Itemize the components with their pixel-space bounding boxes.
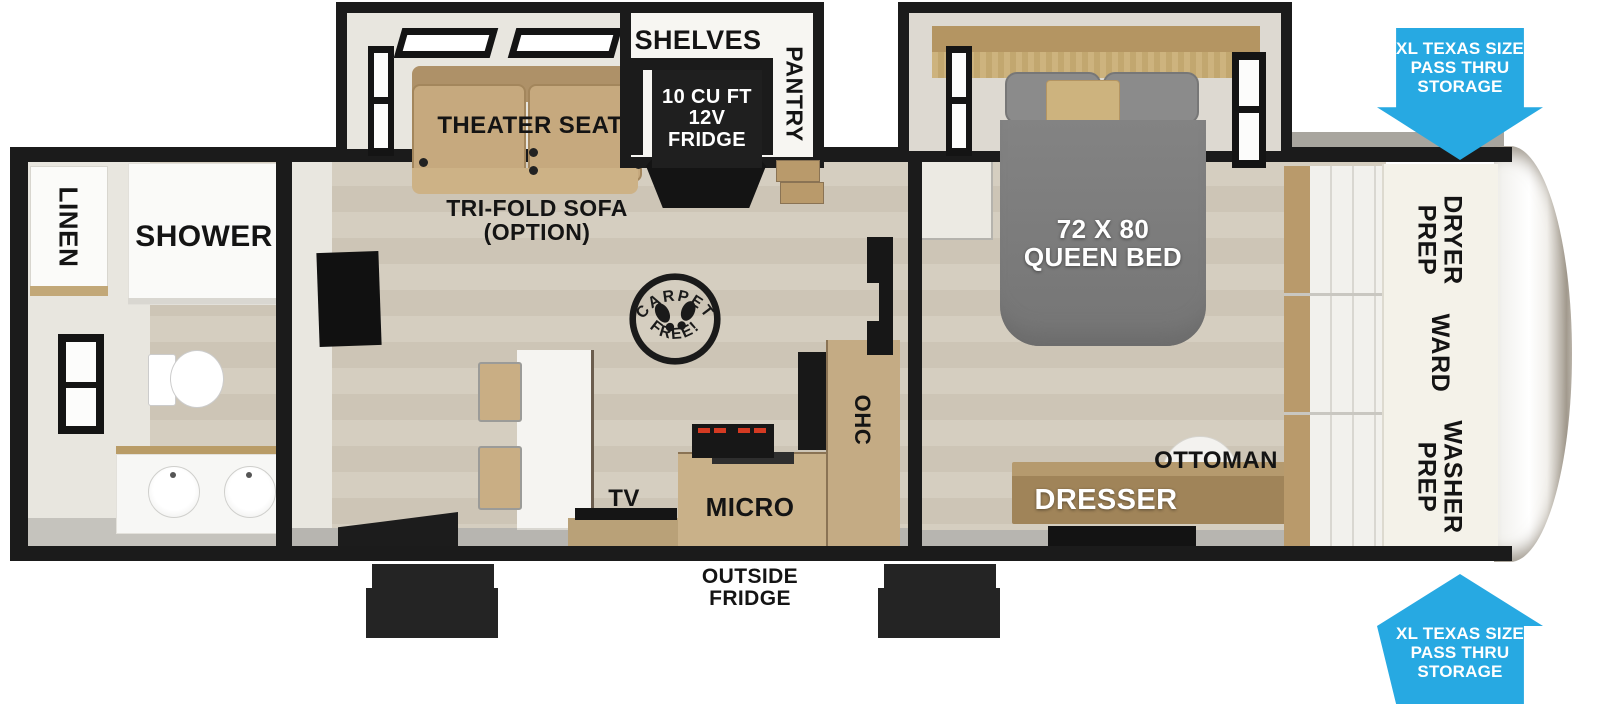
entry-step-exterior (372, 564, 494, 588)
faucet-left-icon (170, 472, 176, 478)
theater-seat-front (412, 168, 638, 194)
stool-bottom (478, 446, 522, 510)
tv-cabinet (568, 518, 678, 546)
cupholder-icon (529, 148, 538, 157)
wall-bath-living (276, 147, 292, 561)
shower-glass (128, 298, 280, 304)
bedroom-entry-step (867, 237, 893, 283)
ward-label: WARD (1426, 314, 1452, 393)
wardrobe-wood-interior (1284, 166, 1310, 546)
pass-thru-arrow-up: XL TEXAS SIZE PASS THRU STORAGE (1377, 574, 1543, 704)
pantry-label: PANTRY (782, 46, 805, 142)
entry-step-exterior (884, 564, 996, 588)
bathroom-window-icon (58, 334, 104, 434)
bedroom-entry-step (867, 321, 893, 355)
washer-prep-label: WASHER PREP (1414, 420, 1465, 533)
bedroom-entry-step (879, 281, 893, 323)
entry-step-exterior (366, 588, 498, 638)
wardrobe-doors (1310, 166, 1382, 546)
wall-living-bedroom (908, 147, 922, 561)
dresser-label: DRESSER (1026, 485, 1186, 516)
ottoman-label: OTTOMAN (1136, 448, 1296, 473)
micro-label: MICRO (680, 494, 820, 522)
wall-left (10, 147, 28, 561)
svg-text:FREE!: FREE! (647, 318, 704, 343)
skylight-window-icon (394, 28, 499, 58)
ohc-label: OHC (851, 395, 873, 446)
slideout-window-icon (368, 46, 394, 156)
fridge-niche-top (631, 58, 773, 70)
wardrobe-divider (1284, 412, 1382, 415)
wall-tv-icon (316, 251, 381, 347)
cupholder-icon (529, 166, 538, 175)
headboard-shelf (932, 26, 1260, 52)
pantry-step (780, 182, 824, 204)
shower-label: SHOWER (120, 221, 288, 253)
fridge: 10 CU FT 12V FRIDGE (652, 70, 762, 168)
linen-label: LINEN (55, 187, 82, 268)
fridge-niche-right (761, 58, 773, 155)
linen-shelf-edge (30, 286, 108, 296)
carpet-stamp-bottom-text: FREE! (647, 318, 704, 343)
cupholder-icon (419, 158, 428, 167)
outside-fridge-label: OUTSIDE FRIDGE (680, 566, 820, 611)
stool-top (478, 362, 522, 422)
wardrobe-divider (1284, 293, 1382, 296)
trifold-sofa-label: TRI-FOLD SOFA (OPTION) (427, 196, 647, 245)
living-left-wall-band (292, 160, 332, 548)
fridge-niche-left (631, 58, 643, 155)
bedroom-tv-icon (1048, 526, 1196, 548)
wall-bottom (10, 546, 1512, 561)
toilet-bowl-icon (170, 350, 224, 408)
bedroom-window-right-icon (1232, 52, 1266, 168)
faucet-right-icon (246, 472, 252, 478)
tv-label: TV (584, 486, 664, 511)
carpet-free-stamp: CARPET FREE! (628, 272, 722, 366)
front-cap (1494, 146, 1572, 562)
dryer-prep-label: DRYER PREP (1414, 195, 1465, 285)
queen-bed-label: 72 X 80 QUEEN BED (1008, 216, 1198, 271)
pass-thru-label-bottom: XL TEXAS SIZE PASS THRU STORAGE (1377, 624, 1543, 682)
rv-floorplan: LINEN SHOWER OHC TV MICRO (0, 0, 1600, 707)
stove-icon (692, 424, 774, 458)
pantry-step (776, 160, 820, 182)
theater-seat-label: THEATER SEAT (430, 113, 630, 138)
entry-step-exterior (878, 588, 1000, 638)
skylight-window-icon (508, 28, 623, 58)
shelves-label: SHELVES (628, 26, 768, 55)
kitchen-island (517, 350, 594, 530)
pass-thru-label-top: XL TEXAS SIZE PASS THRU STORAGE (1377, 39, 1543, 97)
bedroom-corner-cabinet (921, 160, 993, 240)
bedroom-window-left-icon (946, 46, 972, 156)
